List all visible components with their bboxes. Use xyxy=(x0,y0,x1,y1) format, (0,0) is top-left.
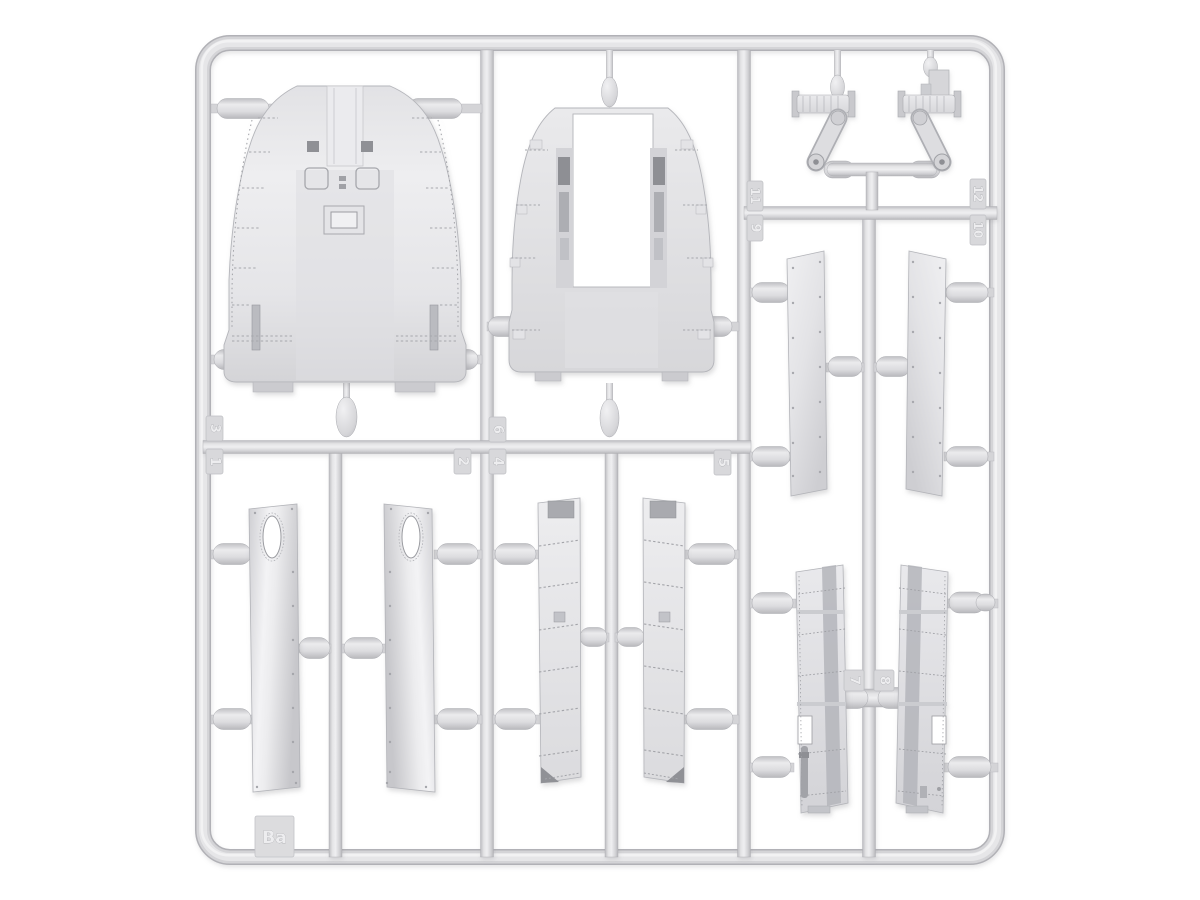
part1-oval-hole xyxy=(263,516,281,558)
runner-horizontal-middle xyxy=(203,441,751,454)
tag-11-number: 11 xyxy=(748,188,762,205)
tag-5: 5 xyxy=(714,450,731,475)
tag-4-number: 4 xyxy=(490,457,505,466)
tag-7-number: 7 xyxy=(847,676,862,685)
tag-10-number: 10 xyxy=(971,222,985,239)
part-side-panel-10 xyxy=(906,251,946,496)
part5-top-notch xyxy=(650,501,676,518)
tag-8-number: 8 xyxy=(877,676,892,685)
part4-top-notch xyxy=(548,501,574,518)
sprue-letter: Ba xyxy=(262,828,286,848)
part3-slot-left xyxy=(252,305,260,350)
tag-3-number: 3 xyxy=(207,424,222,433)
tag-1-number: 1 xyxy=(207,457,222,466)
part3-center-column xyxy=(327,86,363,166)
tag-8: 8 xyxy=(874,670,894,691)
tag-12: 12 xyxy=(970,179,986,209)
tag-2-number: 2 xyxy=(455,457,470,466)
part3-foot-right xyxy=(395,382,435,392)
tag-2: 2 xyxy=(454,449,471,474)
runner-vertical-track-panels xyxy=(605,447,618,857)
part3-fitting-left xyxy=(307,141,319,152)
tag-1: 1 xyxy=(206,449,223,474)
tag-5-number: 5 xyxy=(715,458,730,467)
part12-axle xyxy=(903,95,955,113)
tag-9-number: 9 xyxy=(748,223,763,232)
sprue-letter-tag: Ba xyxy=(255,816,294,857)
part3-foot-left xyxy=(253,382,293,392)
part-side-panel-9 xyxy=(787,251,827,496)
part-fender-2 xyxy=(384,504,435,792)
tag-9: 9 xyxy=(747,215,763,241)
tag-10: 10 xyxy=(970,215,986,245)
part-hull-roof-solid xyxy=(224,86,466,392)
tag-6-number: 6 xyxy=(490,425,505,434)
tag-6: 6 xyxy=(489,417,506,442)
part-track-guard-4 xyxy=(538,498,581,783)
part8-slot xyxy=(932,716,946,744)
runner-vertical-center-right xyxy=(863,208,876,857)
part3-slot-right xyxy=(430,305,438,350)
part7-slot xyxy=(798,716,812,744)
tag-12-number: 12 xyxy=(971,186,985,203)
part12-block xyxy=(929,70,949,98)
part3-fitting-right xyxy=(361,141,373,152)
part-hull-side-8 xyxy=(896,565,948,813)
part2-oval-hole xyxy=(402,516,420,558)
sprue-canvas: 3 1 6 2 4 5 11 9 xyxy=(0,0,1200,900)
tag-11: 11 xyxy=(747,181,763,211)
part-hull-side-7 xyxy=(796,565,848,813)
tag-4: 4 xyxy=(489,449,506,474)
sprue-photo: 3 1 6 2 4 5 11 9 xyxy=(0,0,1200,900)
tag-3: 3 xyxy=(206,416,223,441)
part6-opening xyxy=(573,114,653,287)
part-fender-1 xyxy=(249,504,300,792)
tag-7: 7 xyxy=(844,670,864,691)
part-track-guard-5 xyxy=(643,498,685,783)
part-hull-roof-open xyxy=(509,108,714,381)
